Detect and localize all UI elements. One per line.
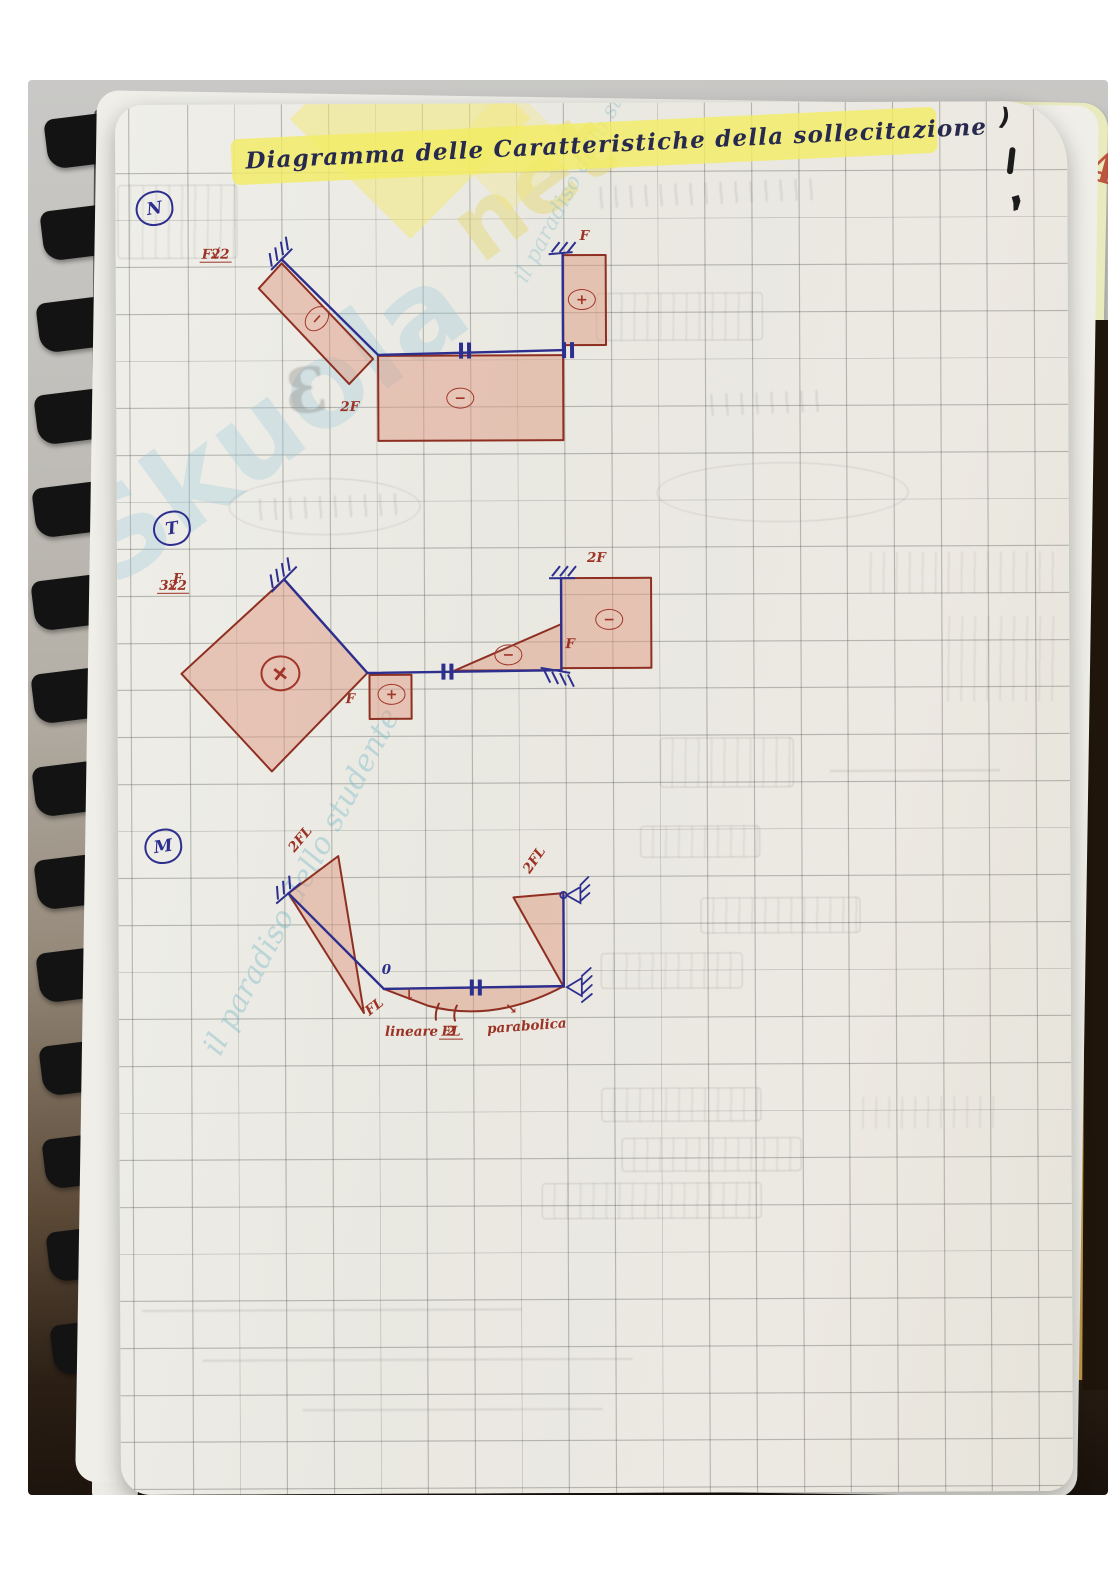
m-mid-denominator: 2 [446,1025,455,1039]
t-square-value: F [346,692,356,706]
n-diag-denominator: 2 [211,248,220,262]
m-zero-value: 0 [382,963,391,977]
t-triangle-sign: − [494,644,522,665]
t-letter: T [164,518,179,540]
support-hatch [549,566,576,578]
t-diagram-shapes [181,556,652,772]
n-right-value: F [580,229,590,243]
m-parabola-arrow: ↘ [505,1001,518,1017]
notebook-photo: 141 Skuola net il paradiso dello student… [0,0,1116,1579]
n-bottom-value: 2F [340,400,359,414]
m-diagram-shapes [268,855,592,1021]
n-bottom-sign: − [446,388,474,409]
diagram-strokes [115,101,1073,1495]
support-hatch [538,668,576,687]
n-letter: N [145,197,163,219]
m-linear-label: lineare [385,1025,438,1039]
t-square-sign: + [378,684,406,705]
n-right-sign: + [568,289,596,310]
t-diamond-sign: + [260,655,300,691]
photo-backdrop: 141 Skuola net il paradiso dello student… [28,80,1108,1495]
m-down-arrow: ↓ [403,988,416,1004]
t-diamond-suffix: F [173,572,183,586]
t-square2-sign: − [595,609,623,630]
n-diagram-shapes [259,235,607,441]
support-hatch [262,237,295,270]
m-letter: M [152,835,174,857]
pin-support [567,968,592,1002]
support-hatch [549,242,576,254]
t-diamond-sign-glyph: + [264,656,297,690]
notebook-page: Skuola net il paradiso dello studente il… [115,101,1073,1495]
t-square2-value: 2F [587,551,606,565]
t-triangle-value: F [565,637,575,651]
